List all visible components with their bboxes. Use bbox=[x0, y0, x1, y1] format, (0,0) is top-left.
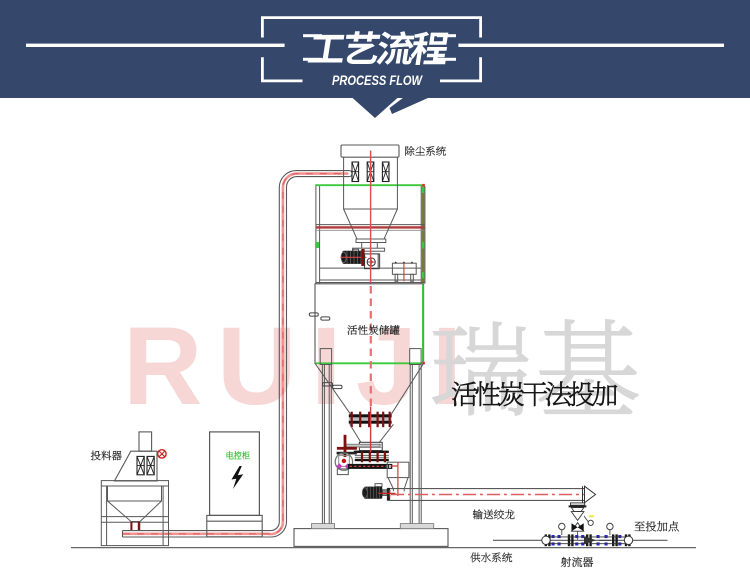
svg-text:PROCESS FLOW: PROCESS FLOW bbox=[332, 73, 423, 89]
